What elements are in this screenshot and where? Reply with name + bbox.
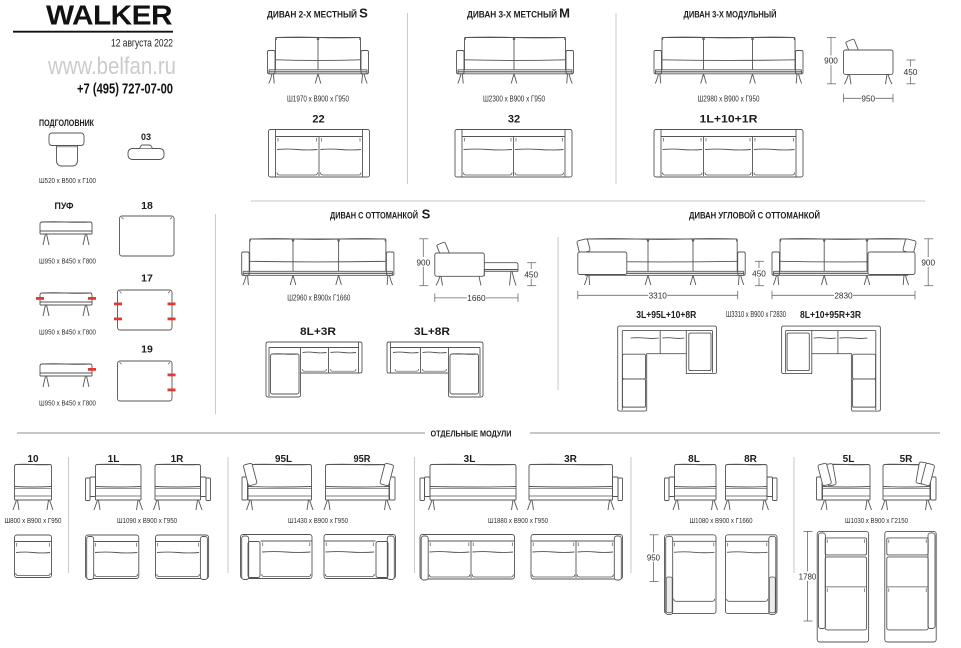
svg-text:Ш1030 х В900 х Г2150: Ш1030 х В900 х Г2150	[845, 516, 908, 525]
svg-text:Ш2980 x В900 x Г950: Ш2980 x В900 x Г950	[698, 95, 760, 104]
svg-text:Ш950 х В450 х Г800: Ш950 х В450 х Г800	[39, 399, 96, 408]
svg-text:3310: 3310	[649, 290, 668, 300]
svg-text:3L+95L+10+8R: 3L+95L+10+8R	[636, 310, 697, 321]
svg-text:10: 10	[27, 454, 39, 465]
svg-text:ДИВАН 3-Х МЕТСНЫЙ: ДИВАН 3-Х МЕТСНЫЙ	[467, 9, 557, 20]
svg-text:8R: 8R	[744, 454, 758, 465]
svg-text:WALKER: WALKER	[46, 0, 173, 31]
svg-text:1660: 1660	[467, 293, 486, 303]
svg-text:950: 950	[861, 93, 875, 103]
svg-text:ДИВАН УГЛОВОЙ С ОТТОМАНКОЙ: ДИВАН УГЛОВОЙ С ОТТОМАНКОЙ	[689, 210, 820, 221]
svg-text:Ш950 х В450 х Г800: Ш950 х В450 х Г800	[39, 257, 96, 266]
svg-text:1L+10+1R: 1L+10+1R	[700, 114, 758, 126]
svg-text:5L: 5L	[843, 454, 855, 465]
svg-text:М: М	[559, 6, 570, 21]
svg-text:Ш800 х В900 х Г950: Ш800 х В900 х Г950	[5, 516, 62, 525]
svg-text:Ш2300 x В900 x Г950: Ш2300 x В900 x Г950	[483, 95, 545, 104]
svg-text:19: 19	[141, 344, 153, 356]
svg-text:5R: 5R	[900, 454, 914, 465]
svg-text:95L: 95L	[275, 454, 292, 465]
svg-text:Ш520 x В500 x Г100: Ш520 x В500 x Г100	[39, 176, 96, 185]
svg-text:+7 (495) 727-07-00: +7 (495) 727-07-00	[77, 82, 173, 98]
svg-text:1780: 1780	[799, 572, 817, 581]
svg-text:8L+3R: 8L+3R	[300, 326, 336, 338]
svg-text:Ш950 х В450 х Г800: Ш950 х В450 х Г800	[39, 328, 96, 337]
svg-text:3L+8R: 3L+8R	[414, 326, 450, 338]
svg-text:900: 900	[824, 56, 838, 66]
svg-text:Ш2960 x В900х Г1660: Ш2960 x В900х Г1660	[287, 294, 350, 303]
svg-text:ПУФ: ПУФ	[55, 201, 74, 211]
svg-text:Ш1970 x В900 x Г950: Ш1970 x В900 x Г950	[287, 95, 349, 104]
svg-text:450: 450	[904, 67, 918, 77]
svg-text:2830: 2830	[834, 290, 853, 300]
svg-text:17: 17	[141, 273, 153, 285]
svg-text:Ш1090 х В900 х Г950: Ш1090 х В900 х Г950	[117, 516, 177, 525]
svg-text:Ш3310 x В900 x Г2830: Ш3310 x В900 x Г2830	[726, 310, 786, 319]
svg-text:ПОДГОЛОВНИК: ПОДГОЛОВНИК	[39, 118, 94, 128]
svg-text:ДИВАН 3-Х МОДУЛЬНЫЙ: ДИВАН 3-Х МОДУЛЬНЫЙ	[684, 9, 777, 20]
svg-text:3L: 3L	[464, 454, 476, 465]
svg-text:ДИВАН 2-Х МЕСТНЫЙ: ДИВАН 2-Х МЕСТНЫЙ	[267, 9, 357, 20]
svg-text:450: 450	[752, 269, 766, 279]
svg-text:S: S	[422, 207, 431, 222]
svg-text:ОТДЕЛЬНЫЕ МОДУЛИ: ОТДЕЛЬНЫЕ МОДУЛИ	[431, 430, 512, 439]
svg-text:3R: 3R	[564, 454, 578, 465]
svg-text:8L+10+95R+3R: 8L+10+95R+3R	[800, 310, 862, 321]
svg-text:12 августа 2022: 12 августа 2022	[111, 38, 173, 50]
svg-text:900: 900	[921, 257, 935, 267]
svg-text:Ш1880 х В900 х Г950: Ш1880 х В900 х Г950	[488, 516, 548, 525]
svg-text:03: 03	[141, 132, 151, 142]
svg-text:www.belfan.ru: www.belfan.ru	[47, 53, 176, 80]
svg-text:32: 32	[508, 114, 520, 126]
svg-text:Ш1430 х В900 х Г950: Ш1430 х В900 х Г950	[288, 516, 348, 525]
svg-text:1R: 1R	[171, 454, 185, 465]
svg-text:S: S	[359, 6, 368, 21]
svg-text:95R: 95R	[354, 454, 372, 465]
svg-text:1L: 1L	[108, 454, 120, 465]
svg-text:ДИВАН С ОТТОМАНКОЙ: ДИВАН С ОТТОМАНКОЙ	[330, 210, 418, 221]
svg-text:22: 22	[312, 114, 324, 126]
svg-text:8L: 8L	[688, 454, 700, 465]
svg-text:450: 450	[524, 269, 538, 279]
svg-text:18: 18	[141, 200, 153, 212]
svg-text:900: 900	[416, 257, 430, 267]
svg-text:Ш1080 х В900 х Г1660: Ш1080 х В900 х Г1660	[690, 516, 753, 525]
svg-text:950: 950	[647, 553, 661, 562]
